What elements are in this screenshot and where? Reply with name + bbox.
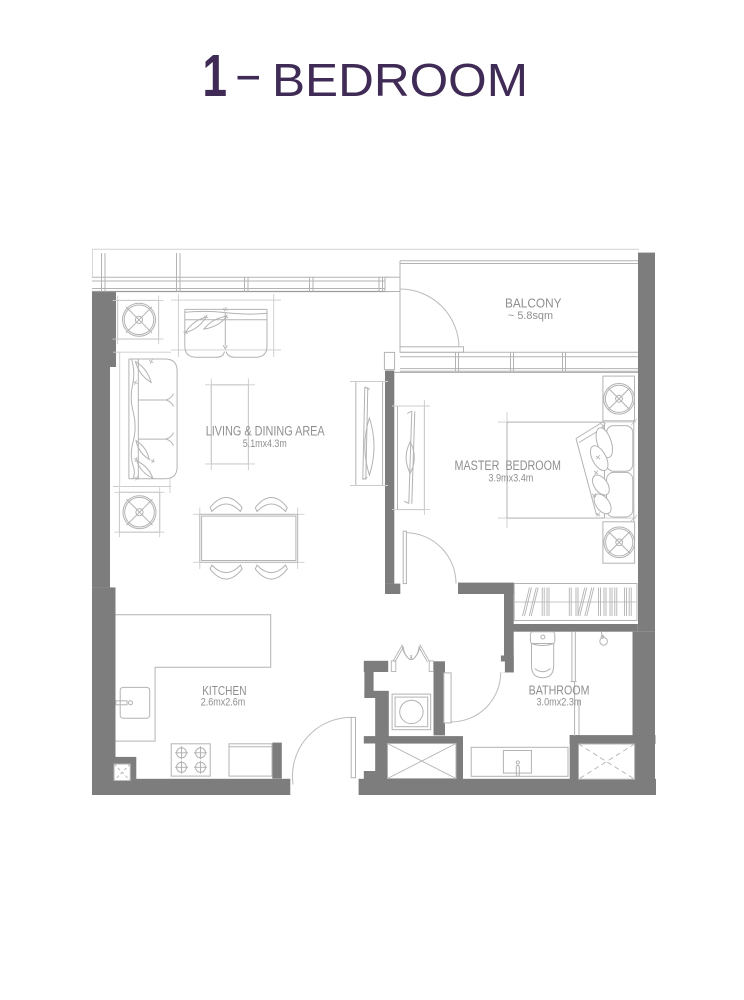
- svg-text:5.1mx4.3m: 5.1mx4.3m: [243, 438, 287, 450]
- svg-text:~ 5.8sqm: ~ 5.8sqm: [508, 310, 553, 322]
- svg-text:3.0mx2.3m: 3.0mx2.3m: [537, 697, 582, 709]
- svg-text:1: 1: [203, 43, 228, 109]
- svg-text:BEDROOM: BEDROOM: [272, 54, 528, 106]
- svg-text:BALCONY: BALCONY: [505, 296, 562, 311]
- svg-text:MASTER BEDROOM: MASTER BEDROOM: [455, 458, 562, 473]
- svg-text:3.9mx3.4m: 3.9mx3.4m: [488, 473, 533, 485]
- svg-text:2.6mx2.6m: 2.6mx2.6m: [201, 697, 245, 709]
- svg-text:BATHROOM: BATHROOM: [529, 683, 590, 698]
- svg-text:LIVING & DINING AREA: LIVING & DINING AREA: [206, 424, 325, 439]
